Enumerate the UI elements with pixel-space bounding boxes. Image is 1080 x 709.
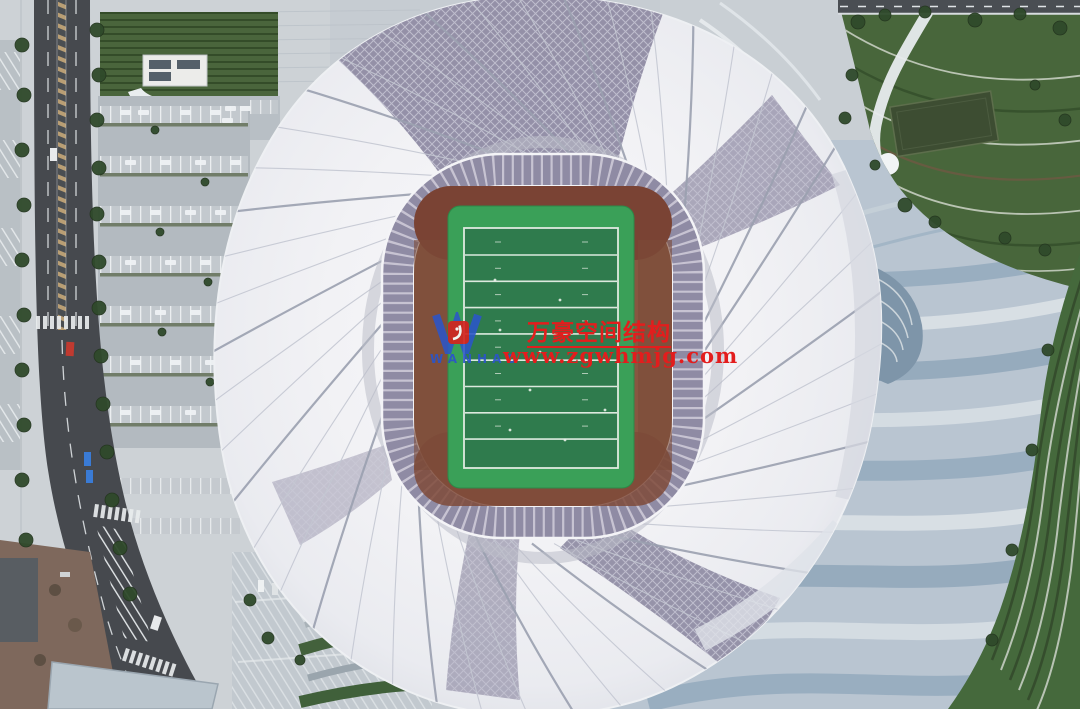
aerial-photo-canvas <box>0 0 1080 709</box>
aerial-photo-stadium: WANHAO 万豪空间结构 www.zgwhmjg.com <box>0 0 1080 709</box>
top-road <box>838 0 1080 14</box>
football-pitch <box>448 206 634 488</box>
